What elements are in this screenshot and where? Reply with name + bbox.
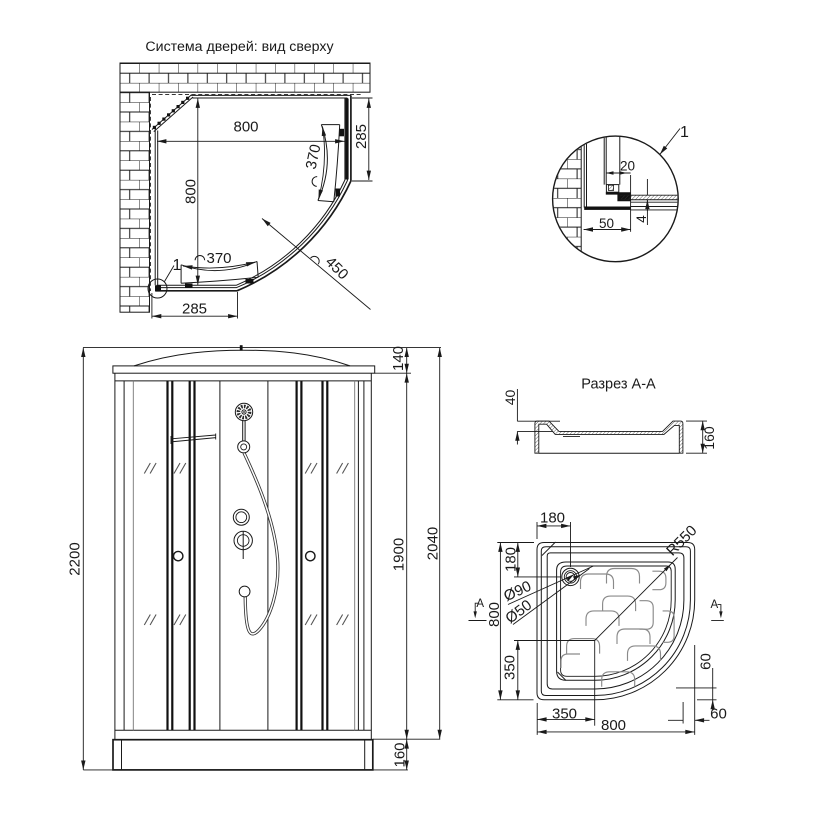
svg-text:20: 20 xyxy=(620,159,635,174)
svg-text:800: 800 xyxy=(183,179,200,204)
svg-text:350: 350 xyxy=(552,705,577,722)
svg-text:285: 285 xyxy=(353,124,370,149)
svg-text:50: 50 xyxy=(599,216,614,231)
svg-text:160: 160 xyxy=(701,426,717,450)
svg-text:1: 1 xyxy=(173,257,182,274)
svg-text:1900: 1900 xyxy=(391,538,408,571)
svg-text:40: 40 xyxy=(502,390,518,406)
svg-text:A: A xyxy=(476,598,484,610)
svg-text:800: 800 xyxy=(233,119,258,136)
svg-text:Система дверей: вид сверху: Система дверей: вид сверху xyxy=(145,39,334,55)
svg-text:285: 285 xyxy=(182,301,207,318)
svg-text:350: 350 xyxy=(502,655,519,680)
svg-text:160: 160 xyxy=(391,742,408,767)
svg-text:180: 180 xyxy=(502,547,519,572)
svg-text:2200: 2200 xyxy=(67,542,84,575)
svg-text:800: 800 xyxy=(486,602,503,627)
svg-text:180: 180 xyxy=(540,509,565,526)
svg-text:4: 4 xyxy=(634,215,649,223)
svg-text:Разрез А-А: Разрез А-А xyxy=(581,377,656,393)
svg-text:1: 1 xyxy=(680,124,689,141)
svg-text:370: 370 xyxy=(206,250,231,267)
svg-text:800: 800 xyxy=(601,717,626,734)
svg-text:60: 60 xyxy=(698,653,715,670)
svg-text:140: 140 xyxy=(390,346,407,371)
svg-text:2040: 2040 xyxy=(425,527,442,560)
svg-text:60: 60 xyxy=(710,706,727,723)
svg-text:A: A xyxy=(710,599,718,611)
